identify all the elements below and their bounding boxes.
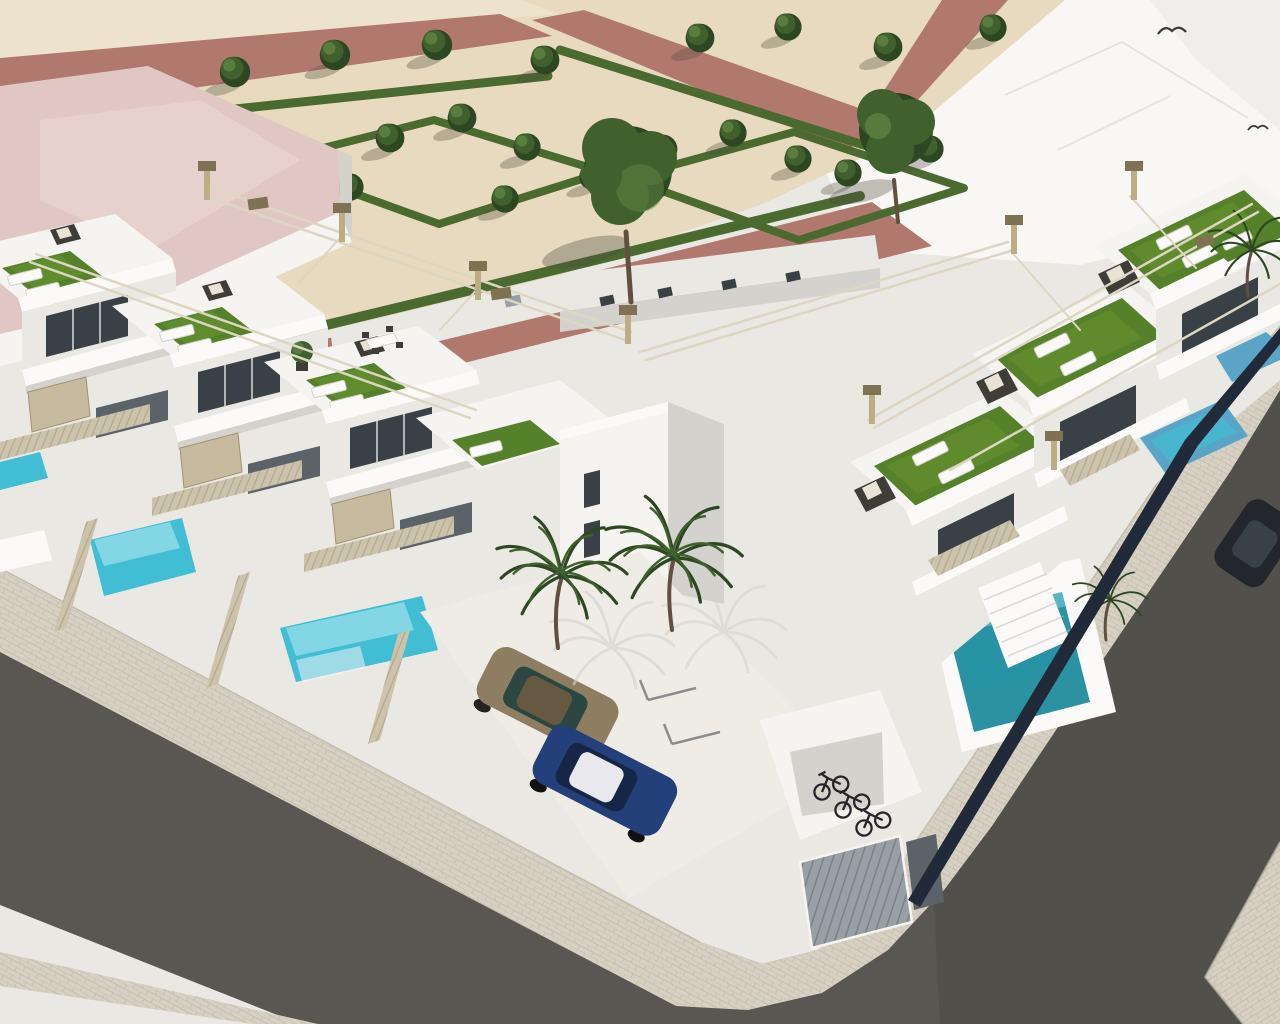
scene-svg xyxy=(0,0,1280,1024)
render-canvas xyxy=(0,0,1280,1024)
